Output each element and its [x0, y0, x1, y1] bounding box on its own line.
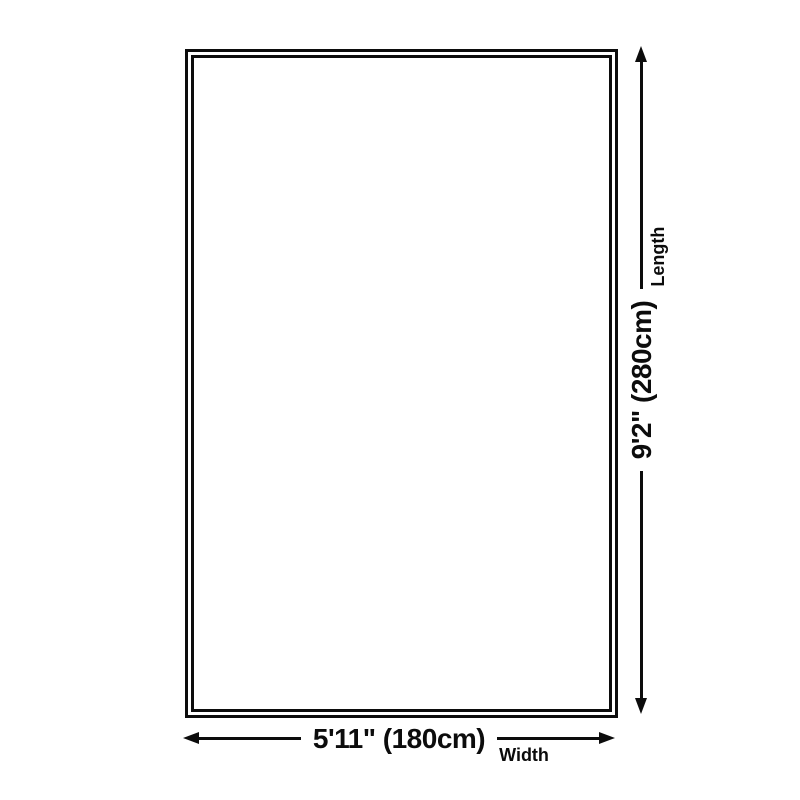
arrowhead-up-icon — [635, 46, 647, 62]
arrowhead-down-icon — [635, 698, 647, 714]
length-dimension-line-top — [640, 62, 643, 289]
length-dimension-line-bottom — [640, 471, 643, 698]
rug-outline-inner — [191, 55, 612, 712]
length-value: 9'2" (280cm) — [628, 289, 656, 472]
length-label: Length — [649, 227, 667, 287]
width-label: Width — [499, 746, 549, 764]
rug-outline — [185, 49, 618, 718]
width-dimension-line-left — [199, 737, 301, 740]
length-dimension-arrow: 9'2" (280cm) Length — [619, 46, 663, 714]
width-dimension-arrow: 5'11" (180cm) Width — [183, 716, 615, 760]
width-dimension-line-right — [497, 737, 599, 740]
width-value: 5'11" (180cm) — [301, 725, 497, 753]
diagram-canvas: 5'11" (180cm) Width 9'2" (280cm) Length — [0, 0, 800, 800]
arrowhead-left-icon — [183, 732, 199, 744]
arrowhead-right-icon — [599, 732, 615, 744]
